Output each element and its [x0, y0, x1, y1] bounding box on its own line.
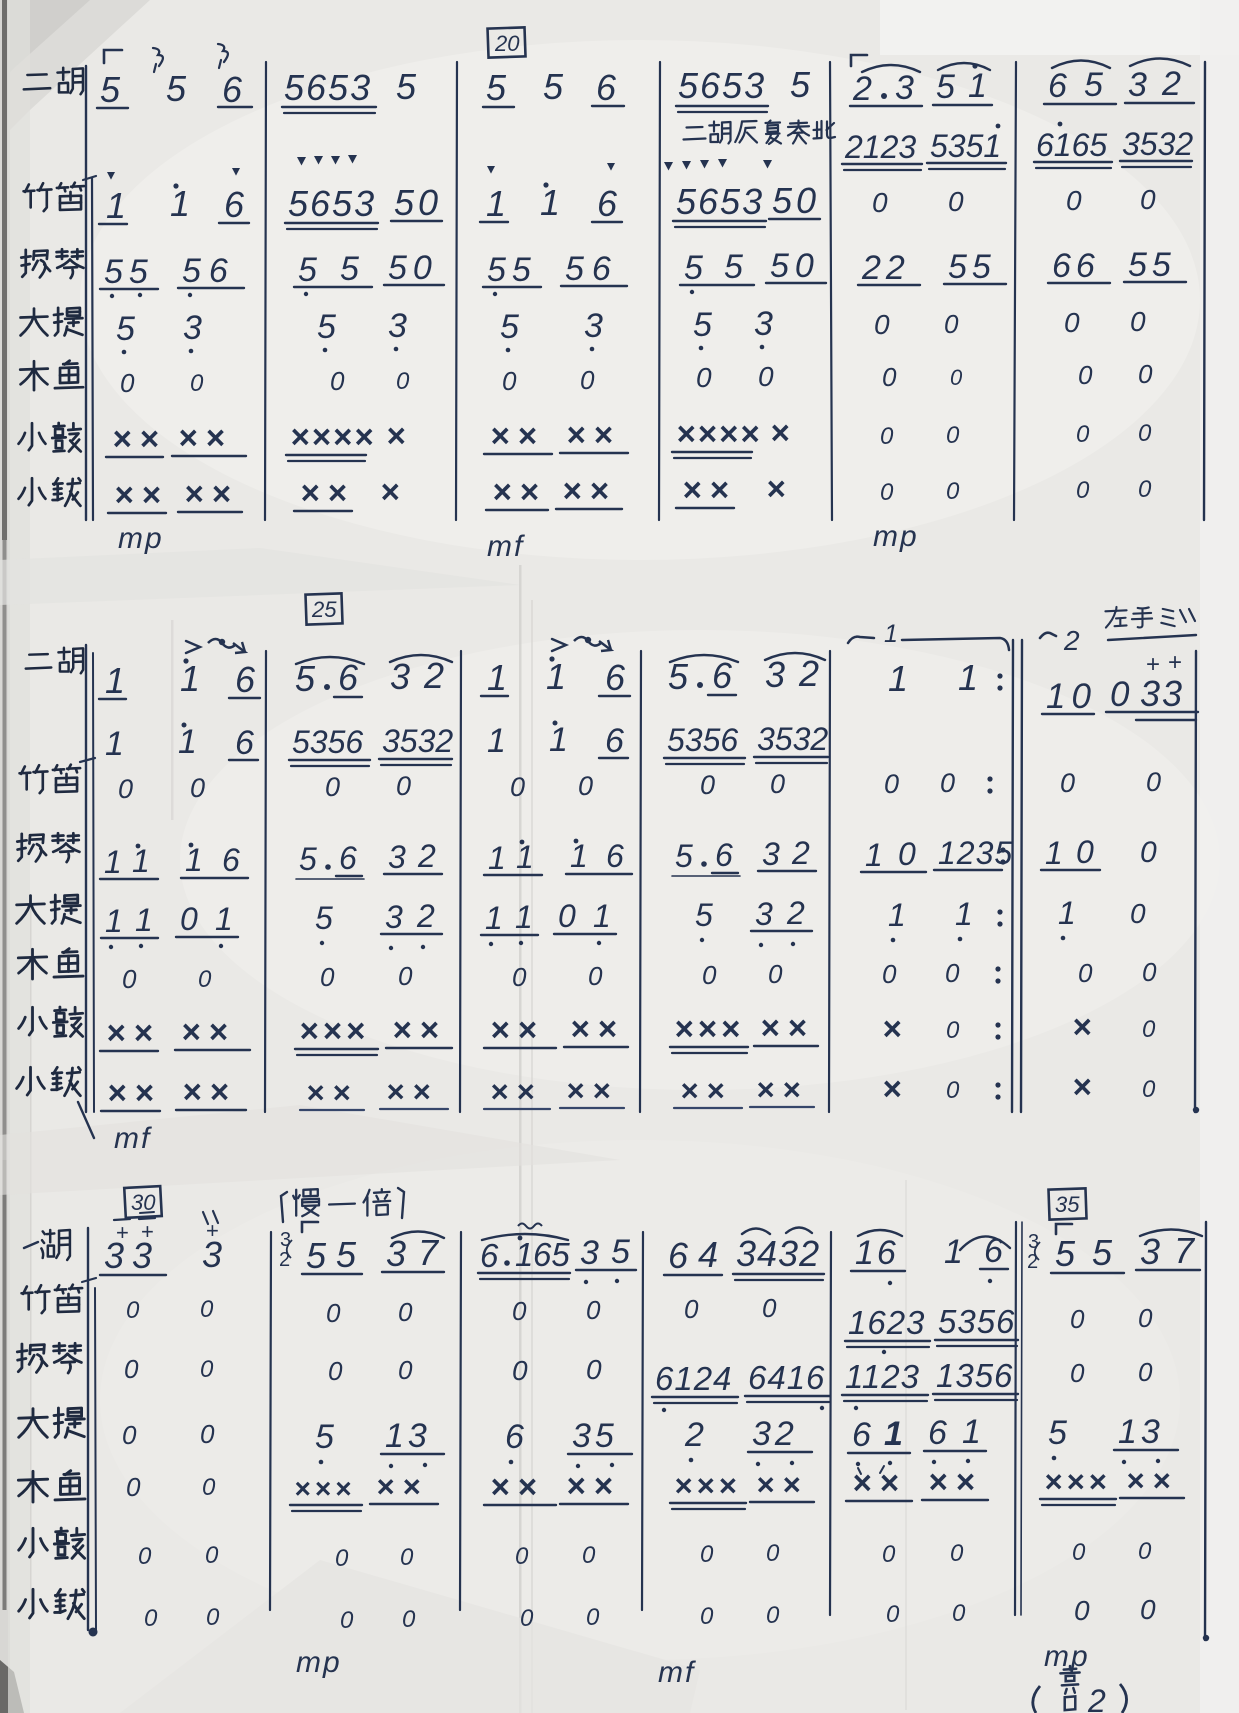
- svg-text:××: ××: [106, 1014, 161, 1051]
- svg-text:1: 1: [105, 660, 125, 701]
- svg-text:5356: 5356: [667, 722, 738, 758]
- svg-text:××: ××: [682, 471, 737, 508]
- svg-text:6: 6: [712, 655, 733, 696]
- svg-text:1: 1: [215, 901, 233, 937]
- svg-text:1623: 1623: [848, 1304, 925, 1341]
- svg-text:2: 2: [417, 838, 436, 874]
- svg-text:1: 1: [106, 185, 126, 226]
- svg-text:0: 0: [1138, 420, 1152, 447]
- svg-text:3: 3: [755, 896, 773, 932]
- svg-text:1356: 1356: [936, 1357, 1013, 1394]
- svg-text:55: 55: [487, 251, 537, 289]
- svg-text:5: 5: [684, 249, 703, 287]
- svg-text:6: 6: [605, 722, 624, 760]
- svg-text:5: 5: [116, 310, 135, 348]
- svg-text:××: ××: [566, 1467, 621, 1504]
- svg-text:6: 6: [480, 1237, 499, 1274]
- svg-text:5: 5: [1055, 1233, 1076, 1274]
- svg-text:0: 0: [882, 1541, 896, 1568]
- svg-text:0: 0: [144, 1605, 158, 1632]
- svg-text:3: 3: [388, 839, 406, 875]
- svg-text:××: ××: [852, 1464, 907, 1501]
- svg-text:7: 7: [1174, 1230, 1196, 1271]
- svg-text:50: 50: [770, 247, 820, 285]
- svg-text:6: 6: [222, 69, 243, 110]
- svg-text:50: 50: [394, 182, 442, 223]
- svg-text:××: ××: [490, 417, 545, 454]
- svg-text:×: ×: [1072, 1008, 1099, 1045]
- svg-text:mp: mp: [873, 520, 919, 553]
- svg-text:0: 0: [120, 368, 135, 398]
- svg-text:0: 0: [1076, 834, 1094, 870]
- svg-text:3532: 3532: [1122, 126, 1193, 162]
- svg-text:3: 3: [584, 307, 603, 345]
- svg-text:0: 0: [1076, 421, 1090, 448]
- svg-text:6: 6: [596, 67, 617, 108]
- svg-text:0: 0: [586, 1354, 602, 1385]
- svg-text:3: 3: [895, 69, 914, 107]
- svg-text:0: 0: [200, 1356, 214, 1383]
- svg-text:3: 3: [390, 656, 410, 697]
- svg-text:0: 0: [326, 1298, 341, 1328]
- svg-text:5: 5: [100, 69, 121, 110]
- svg-text:0: 0: [946, 422, 960, 449]
- svg-text:5: 5: [543, 66, 564, 107]
- svg-text:2: 2: [1027, 1251, 1038, 1273]
- svg-text:××: ××: [306, 1075, 358, 1110]
- svg-text:0: 0: [124, 1354, 139, 1384]
- svg-text:××: ××: [386, 1074, 438, 1109]
- svg-text:0: 0: [874, 309, 890, 340]
- svg-text:0: 0: [402, 1606, 416, 1633]
- svg-text:3532: 3532: [757, 721, 828, 757]
- svg-text:1: 1: [540, 182, 560, 223]
- svg-text:0: 0: [946, 478, 960, 505]
- svg-text:0: 0: [122, 964, 137, 994]
- svg-text:6: 6: [606, 838, 624, 874]
- svg-text:1: 1: [593, 898, 611, 934]
- svg-text:0: 0: [700, 1541, 714, 1568]
- svg-text:0: 0: [1138, 1538, 1152, 1565]
- svg-text:mf: mf: [114, 1122, 152, 1155]
- svg-text:1: 1: [105, 903, 123, 939]
- svg-text:5653: 5653: [284, 67, 372, 108]
- svg-text:6: 6: [224, 184, 245, 225]
- svg-text:0: 0: [1076, 477, 1090, 504]
- svg-text:1: 1: [888, 658, 908, 699]
- svg-text:5653: 5653: [288, 183, 376, 224]
- svg-text:0: 0: [898, 836, 916, 872]
- svg-text:×: ×: [380, 473, 407, 510]
- svg-text:50: 50: [772, 180, 820, 221]
- svg-text:××: ××: [570, 1010, 625, 1047]
- svg-text:×××: ×××: [1044, 1464, 1110, 1499]
- svg-text:6: 6: [852, 1416, 871, 1454]
- svg-text:0: 0: [1146, 767, 1161, 797]
- svg-text:1: 1: [485, 900, 503, 936]
- svg-text:0: 0: [950, 365, 963, 390]
- svg-text:33: 33: [1140, 673, 1184, 714]
- svg-text:××: ××: [392, 1011, 447, 1048]
- svg-text:5: 5: [486, 67, 507, 108]
- svg-text:13: 13: [1118, 1413, 1164, 1451]
- svg-text:0: 0: [696, 362, 712, 393]
- svg-text:0: 0: [512, 1355, 528, 1386]
- svg-text:5: 5: [693, 306, 712, 344]
- svg-text:3: 3: [388, 307, 407, 345]
- svg-text:××: ××: [181, 1013, 236, 1050]
- svg-text:5: 5: [298, 251, 317, 289]
- svg-text:×××: ×××: [674, 1010, 744, 1047]
- svg-text:0: 0: [702, 960, 717, 990]
- svg-text:6: 6: [597, 183, 618, 224]
- svg-text:0: 0: [512, 962, 527, 992]
- svg-text:0: 0: [1140, 836, 1157, 869]
- svg-text:1: 1: [1058, 895, 1076, 931]
- svg-text:0: 0: [1072, 1539, 1086, 1566]
- svg-text:6: 6: [235, 659, 256, 700]
- svg-text:5356: 5356: [938, 1303, 1015, 1340]
- svg-text:0: 0: [1066, 185, 1082, 216]
- svg-text:mp: mp: [1044, 1640, 1090, 1673]
- svg-text:25: 25: [311, 597, 337, 622]
- svg-text:0: 0: [198, 966, 212, 993]
- svg-text:5: 5: [317, 308, 336, 346]
- svg-text:2123: 2123: [844, 129, 916, 165]
- svg-text:6165: 6165: [1036, 127, 1107, 163]
- svg-text:6: 6: [605, 657, 626, 698]
- svg-text:0: 0: [398, 1355, 413, 1385]
- svg-text:5653: 5653: [678, 65, 766, 106]
- svg-text:××: ××: [492, 473, 547, 510]
- svg-text:0: 0: [1130, 306, 1146, 337]
- svg-text:0: 0: [335, 1545, 349, 1572]
- svg-text:××: ××: [490, 1011, 545, 1048]
- svg-text:0: 0: [882, 362, 897, 392]
- svg-text:5: 5: [166, 68, 187, 109]
- svg-text:1: 1: [884, 1415, 903, 1453]
- svg-text:0: 0: [586, 1604, 600, 1631]
- svg-text:0: 0: [684, 1294, 699, 1324]
- svg-text:0: 0: [512, 1296, 527, 1326]
- svg-text:1: 1: [185, 842, 203, 878]
- svg-text:16: 16: [855, 1234, 899, 1272]
- svg-text:0: 0: [944, 309, 959, 339]
- svg-text:××××: ××××: [676, 415, 761, 452]
- svg-text:0: 0: [946, 1077, 960, 1104]
- svg-text:6: 6: [715, 837, 733, 873]
- svg-text:6: 6: [235, 724, 254, 762]
- svg-text:0: 0: [1138, 1357, 1153, 1387]
- svg-text:5: 5: [340, 250, 359, 288]
- svg-text:0: 0: [520, 1605, 534, 1632]
- svg-text:65: 65: [533, 1236, 570, 1273]
- svg-text:6: 6: [668, 1235, 689, 1276]
- svg-text:1: 1: [958, 657, 978, 698]
- svg-text:1: 1: [135, 902, 153, 938]
- svg-text:0: 0: [1138, 359, 1153, 389]
- svg-text:2: 2: [684, 1416, 704, 1454]
- svg-text:0: 0: [700, 770, 715, 800]
- svg-text:××: ××: [566, 416, 621, 453]
- svg-text:1: 1: [180, 658, 200, 699]
- svg-text:6: 6: [1048, 67, 1067, 105]
- svg-text:22: 22: [861, 249, 910, 287]
- svg-text:0: 0: [1078, 360, 1093, 390]
- svg-text:5: 5: [315, 900, 333, 936]
- svg-text:×: ×: [386, 417, 413, 454]
- svg-text:2: 2: [423, 655, 444, 696]
- svg-text:××: ××: [300, 474, 355, 511]
- svg-text:6124: 6124: [655, 1360, 732, 1397]
- svg-text:0: 0: [948, 186, 964, 217]
- svg-text:0: 0: [1140, 1594, 1156, 1625]
- svg-text:0: 0: [578, 771, 593, 801]
- svg-text:56: 56: [182, 252, 236, 290]
- svg-text:5: 5: [611, 1233, 630, 1271]
- svg-text:0: 0: [758, 361, 774, 392]
- svg-text:0: 0: [515, 1543, 529, 1570]
- svg-text:1: 1: [944, 1233, 963, 1271]
- svg-text:1123: 1123: [845, 1358, 920, 1395]
- svg-text:0: 0: [122, 1420, 137, 1450]
- svg-text:5: 5: [336, 1234, 357, 1275]
- svg-text:1: 1: [962, 1413, 981, 1451]
- svg-text:0: 0: [205, 1542, 219, 1569]
- svg-text:0: 0: [884, 769, 899, 799]
- svg-text:32: 32: [752, 1415, 798, 1453]
- svg-text:55: 55: [104, 253, 154, 291]
- svg-text:mf: mf: [658, 1656, 696, 1689]
- svg-text:35: 35: [1055, 1192, 1080, 1217]
- svg-text:0: 0: [126, 1297, 140, 1324]
- svg-text:1: 1: [865, 837, 883, 873]
- svg-text:3: 3: [202, 1234, 222, 1275]
- svg-text:0: 0: [770, 769, 785, 799]
- svg-text:0: 0: [398, 961, 413, 991]
- svg-text:0: 0: [762, 1293, 777, 1323]
- svg-text:0: 0: [1130, 898, 1146, 929]
- svg-text:0: 0: [582, 1542, 596, 1569]
- svg-text:1: 1: [968, 67, 987, 105]
- svg-text:50: 50: [388, 249, 438, 287]
- svg-text:1: 1: [884, 620, 898, 648]
- svg-text:0: 0: [886, 1601, 900, 1628]
- svg-text:5: 5: [306, 1235, 327, 1276]
- svg-text:5: 5: [675, 838, 693, 874]
- svg-text:××: ××: [182, 1073, 237, 1110]
- svg-text:×: ×: [766, 470, 793, 507]
- svg-text:mf: mf: [487, 530, 525, 563]
- svg-text:5356: 5356: [292, 724, 363, 760]
- svg-text:2: 2: [798, 653, 819, 694]
- svg-text:6: 6: [338, 657, 359, 698]
- svg-text:5: 5: [790, 64, 811, 105]
- svg-text:3: 3: [762, 836, 780, 872]
- svg-text:0: 0: [328, 1356, 343, 1386]
- svg-text:1: 1: [487, 722, 506, 760]
- svg-text:3432: 3432: [736, 1233, 820, 1274]
- svg-text:0: 0: [580, 365, 595, 395]
- svg-text:0: 0: [700, 1603, 714, 1630]
- svg-text:1: 1: [515, 899, 533, 935]
- svg-text:×: ×: [882, 1070, 909, 1107]
- svg-text:0: 0: [340, 1607, 354, 1634]
- svg-text:5: 5: [315, 1418, 334, 1456]
- svg-text:××: ××: [1126, 1463, 1178, 1498]
- svg-text:0: 0: [1142, 1016, 1156, 1043]
- svg-text:20: 20: [494, 31, 520, 56]
- svg-text:1: 1: [955, 896, 973, 932]
- svg-text:4: 4: [698, 1234, 718, 1275]
- svg-text:55: 55: [1128, 246, 1176, 284]
- svg-text:××: ××: [756, 1467, 808, 1502]
- svg-text:1235: 1235: [938, 835, 1013, 871]
- svg-text:0: 0: [330, 366, 345, 396]
- svg-text:5: 5: [695, 897, 713, 933]
- svg-text:0: 0: [1070, 1358, 1085, 1388]
- svg-text:0: 0: [558, 898, 576, 934]
- svg-text:××: ××: [490, 1468, 545, 1505]
- svg-text:0: 0: [320, 962, 335, 992]
- svg-text:6: 6: [222, 842, 240, 878]
- svg-text:××: ××: [178, 419, 233, 456]
- svg-text:0: 0: [180, 901, 198, 937]
- svg-text:3: 3: [386, 1233, 406, 1274]
- svg-text:0: 0: [1140, 184, 1156, 215]
- svg-text:5: 5: [299, 841, 317, 877]
- svg-text:0: 0: [400, 1544, 414, 1571]
- svg-text:0: 0: [952, 1600, 966, 1627]
- svg-text:0: 0: [190, 773, 205, 803]
- svg-text:0: 0: [1064, 307, 1080, 338]
- svg-text:0: 0: [1110, 675, 1130, 714]
- svg-text:××: ××: [107, 1074, 162, 1111]
- svg-text:5: 5: [724, 248, 743, 286]
- svg-text:3: 3: [580, 1234, 599, 1272]
- svg-text:mp: mp: [118, 522, 164, 555]
- svg-text:5: 5: [1048, 1414, 1067, 1452]
- svg-text:2: 2: [1063, 625, 1080, 656]
- svg-text:56: 56: [565, 250, 619, 288]
- svg-text:1: 1: [486, 183, 506, 224]
- svg-text:1: 1: [487, 657, 507, 698]
- svg-text:0: 0: [202, 1474, 216, 1501]
- svg-text:0: 0: [946, 1017, 960, 1044]
- svg-text:3: 3: [765, 654, 785, 695]
- svg-text:3532: 3532: [382, 723, 453, 759]
- svg-text:××: ××: [490, 1074, 542, 1109]
- svg-text:33: 33: [104, 1235, 160, 1276]
- svg-text:3: 3: [183, 309, 202, 347]
- svg-text:3: 3: [1140, 1231, 1160, 1272]
- svg-text:66: 66: [1052, 247, 1100, 285]
- svg-text:0: 0: [206, 1604, 220, 1631]
- svg-text:×××: ×××: [674, 1468, 740, 1503]
- svg-text:0: 0: [138, 1543, 152, 1570]
- svg-text:2: 2: [786, 895, 805, 931]
- svg-text:0: 0: [872, 187, 888, 218]
- svg-text:0: 0: [1060, 768, 1075, 798]
- svg-text:×××: ×××: [294, 1473, 355, 1504]
- svg-text:0: 0: [1142, 1076, 1156, 1103]
- svg-text:××: ××: [184, 475, 239, 512]
- svg-text:5: 5: [1092, 1232, 1113, 1273]
- svg-text:××: ××: [928, 1463, 983, 1500]
- svg-text:5: 5: [1084, 66, 1103, 104]
- svg-text:1: 1: [888, 897, 906, 933]
- svg-text:0: 0: [882, 959, 897, 989]
- svg-text:0: 0: [398, 1297, 413, 1327]
- svg-text:0: 0: [940, 768, 955, 798]
- svg-text:55: 55: [948, 248, 996, 286]
- svg-text:××××: ××××: [290, 418, 375, 455]
- svg-text:1: 1: [515, 1236, 533, 1273]
- svg-text:mp: mp: [296, 1646, 342, 1679]
- svg-text:0: 0: [200, 1296, 214, 1323]
- svg-text:5351: 5351: [930, 128, 1001, 164]
- svg-text:6: 6: [928, 1414, 947, 1452]
- svg-text:0: 0: [1078, 958, 1093, 988]
- svg-text:0: 0: [766, 1540, 780, 1567]
- svg-text:1: 1: [105, 725, 124, 763]
- svg-text:2: 2: [1161, 65, 1181, 103]
- svg-text:0: 0: [1074, 1595, 1090, 1626]
- svg-text:0: 0: [880, 479, 894, 506]
- svg-text:1: 1: [104, 844, 122, 880]
- svg-text:1: 1: [488, 840, 506, 876]
- svg-text:×: ×: [882, 1010, 909, 1047]
- svg-text:0: 0: [1070, 1304, 1085, 1334]
- svg-text:0: 0: [880, 423, 894, 450]
- svg-text:1: 1: [570, 838, 588, 874]
- svg-text:0: 0: [396, 368, 410, 395]
- svg-text:1: 1: [516, 839, 534, 875]
- svg-text:0: 0: [190, 370, 204, 397]
- svg-text:3: 3: [754, 305, 773, 343]
- svg-text:0: 0: [766, 1602, 780, 1629]
- svg-text:××: ××: [114, 476, 169, 513]
- svg-text:1: 1: [132, 843, 150, 879]
- svg-text:35: 35: [572, 1417, 618, 1455]
- svg-text:6416: 6416: [748, 1359, 825, 1396]
- svg-text:0: 0: [502, 366, 517, 396]
- svg-text:2: 2: [852, 70, 872, 108]
- svg-text:××: ××: [680, 1073, 732, 1108]
- svg-text:3: 3: [1128, 66, 1147, 104]
- svg-text:××: ××: [376, 1469, 428, 1504]
- svg-text:0: 0: [325, 772, 340, 802]
- svg-text:1: 1: [178, 723, 197, 761]
- svg-text:6: 6: [505, 1418, 524, 1456]
- svg-text:×: ×: [1072, 1068, 1099, 1105]
- svg-text:3: 3: [1028, 1231, 1039, 1253]
- svg-text:0: 0: [510, 772, 525, 802]
- svg-text:2: 2: [279, 1249, 290, 1271]
- svg-text:0: 0: [1138, 1303, 1153, 1333]
- svg-text:0: 0: [588, 961, 603, 991]
- svg-text:×: ×: [770, 414, 797, 451]
- svg-text:5: 5: [936, 68, 955, 106]
- svg-text:0: 0: [1142, 957, 1157, 987]
- svg-text:0: 0: [768, 959, 783, 989]
- svg-text:6: 6: [339, 840, 357, 876]
- svg-text:3: 3: [385, 899, 403, 935]
- svg-text:××: ××: [112, 420, 167, 457]
- svg-text:1: 1: [1045, 835, 1063, 871]
- svg-text:××: ××: [756, 1072, 808, 1107]
- svg-text:××: ××: [760, 1009, 815, 1046]
